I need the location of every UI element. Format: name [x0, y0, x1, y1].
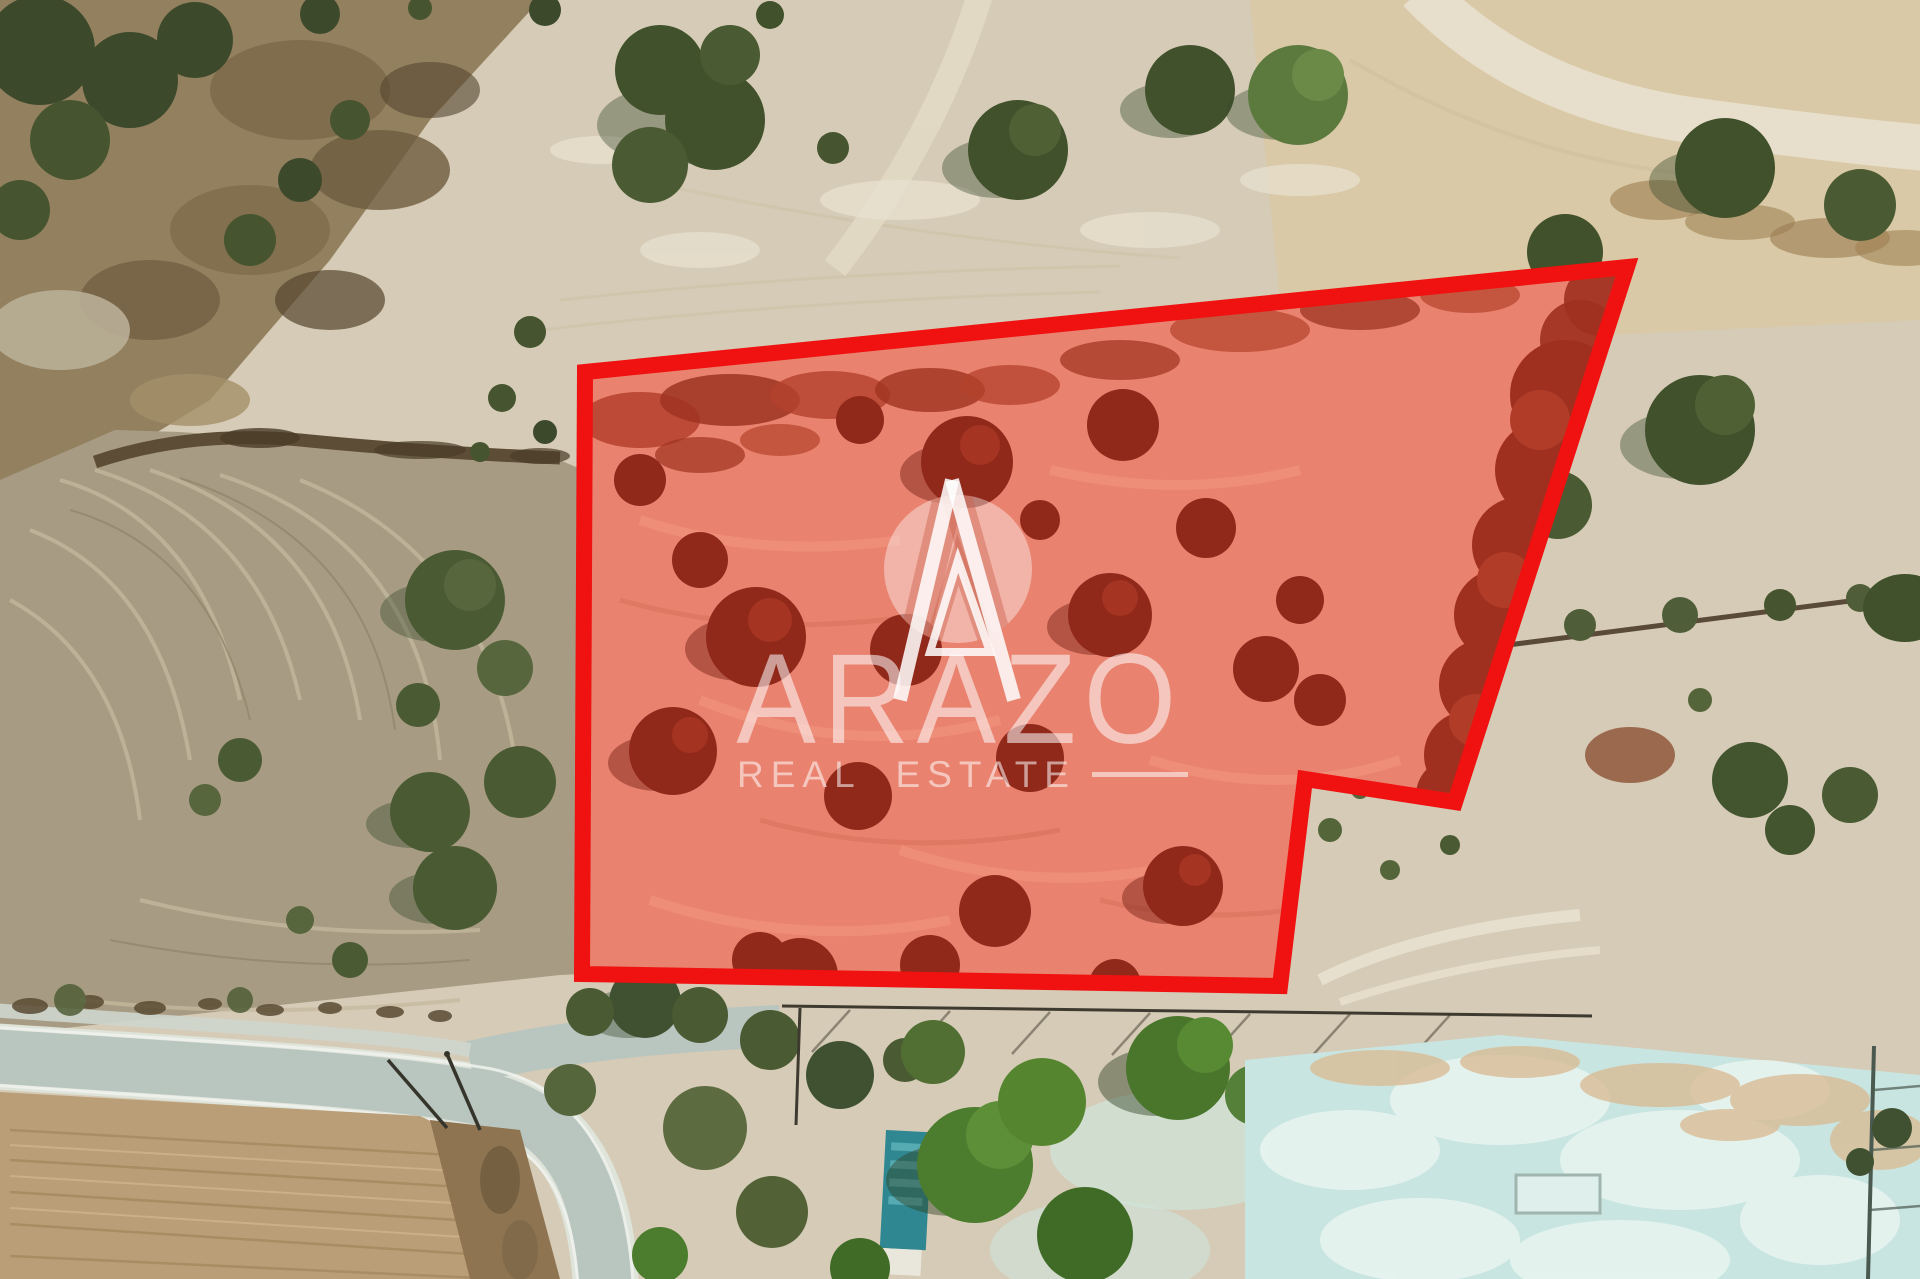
plowed-field: [0, 428, 583, 1035]
pond-platform: [1516, 1175, 1600, 1213]
watermark-tagline: REAL ESTATE: [737, 756, 1188, 793]
tagline-underline: [1092, 772, 1188, 777]
watermark-tagline-text: REAL ESTATE: [737, 756, 1076, 793]
pond: [1245, 1035, 1920, 1279]
aerial-photo: ARAZO REAL ESTATE: [0, 0, 1920, 1279]
watermark-brand: ARAZO: [736, 636, 1183, 764]
